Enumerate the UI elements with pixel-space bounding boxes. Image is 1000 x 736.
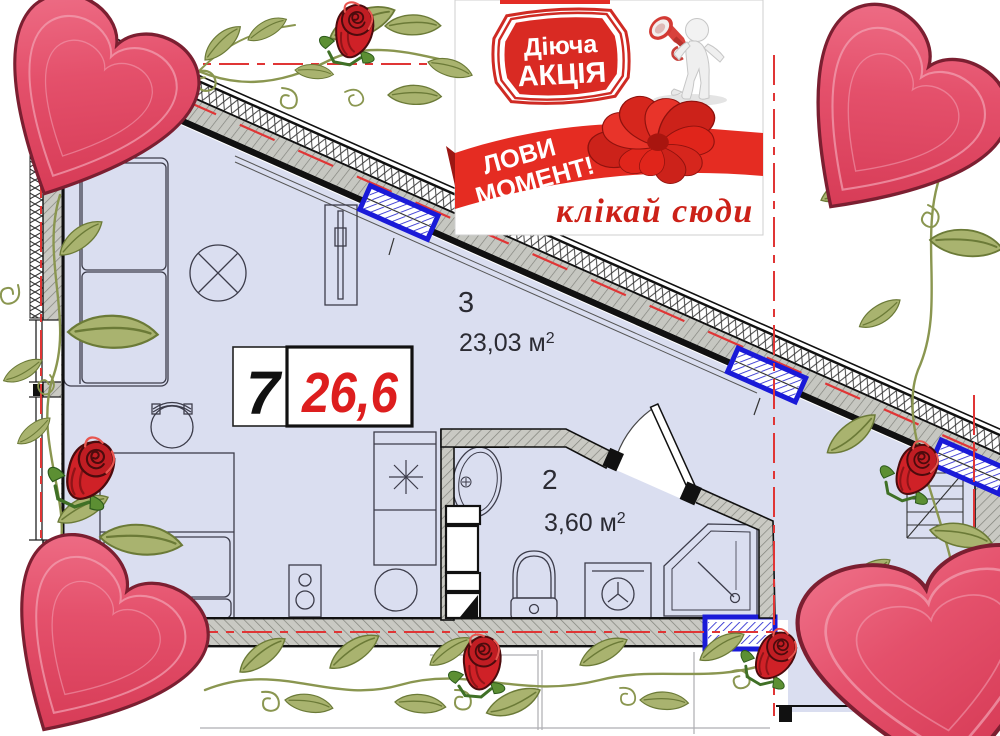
svg-text:3: 3: [458, 287, 474, 319]
svg-text:26,6: 26,6: [301, 361, 398, 425]
svg-text:3,60 м2: 3,60 м2: [544, 509, 626, 537]
svg-text:7: 7: [246, 359, 283, 427]
svg-text:23,03 м2: 23,03 м2: [459, 329, 555, 357]
svg-text:клікай сюди: клікай сюди: [556, 193, 754, 230]
svg-text:АКЦІЯ: АКЦІЯ: [517, 57, 607, 94]
svg-text:2: 2: [542, 464, 558, 495]
